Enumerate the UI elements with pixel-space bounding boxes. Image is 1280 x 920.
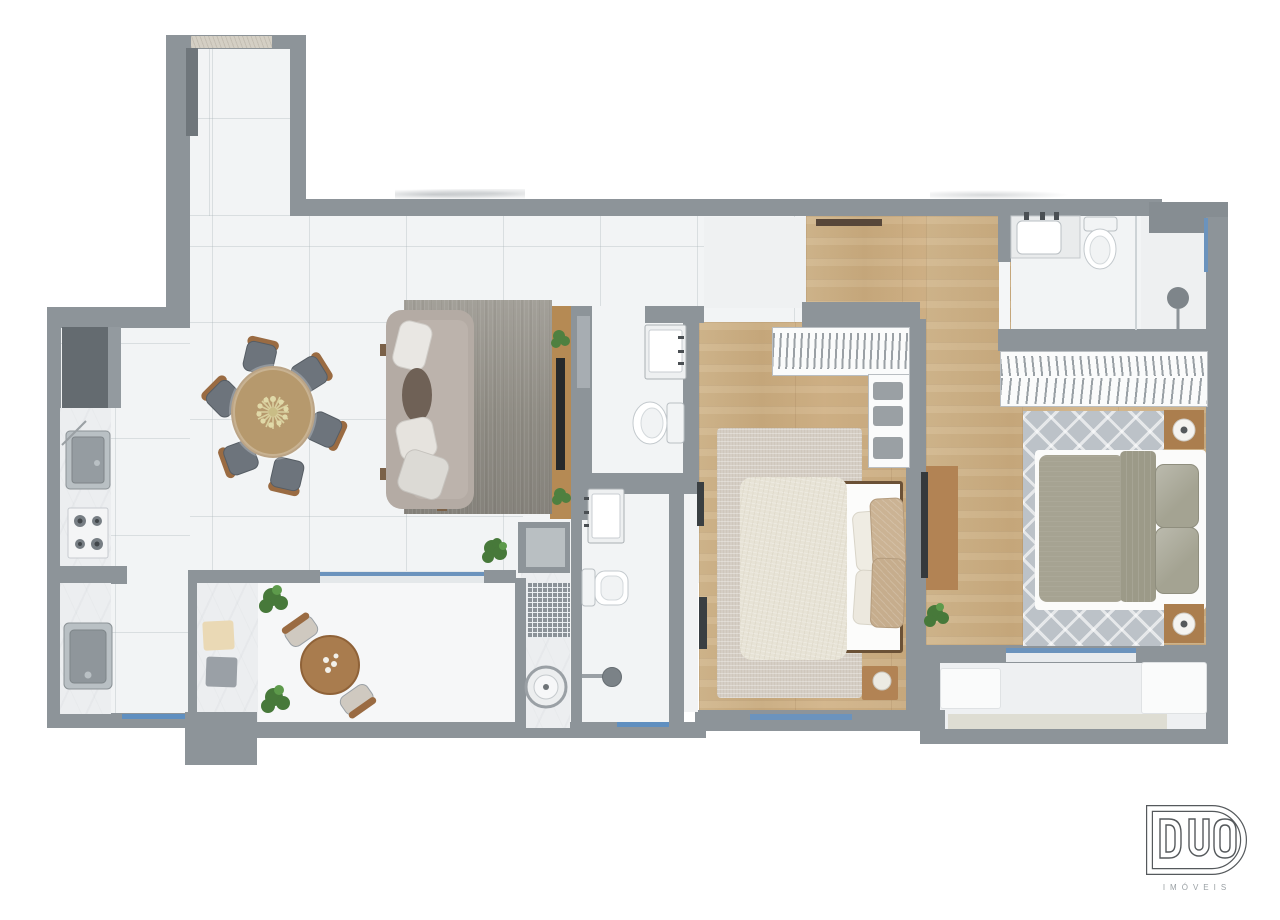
svg-text:IMÓVEIS: IMÓVEIS <box>1163 883 1231 892</box>
